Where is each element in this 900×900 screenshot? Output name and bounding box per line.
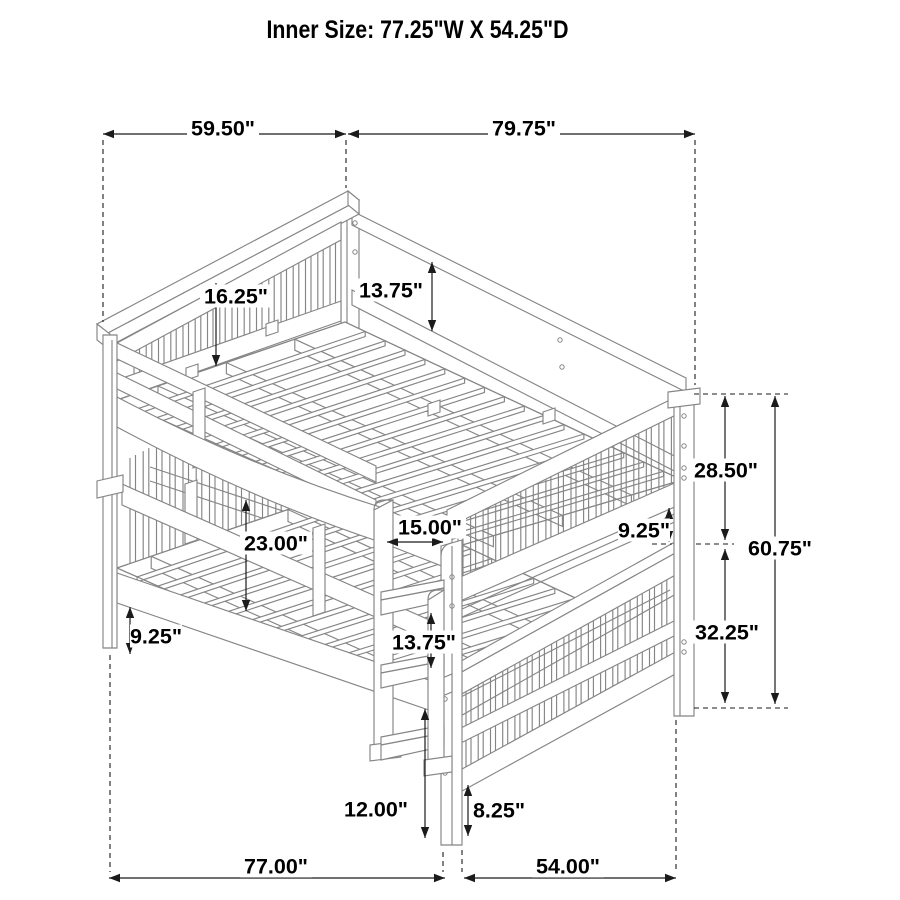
svg-text:12.00": 12.00" xyxy=(344,798,408,822)
svg-text:28.50": 28.50" xyxy=(694,459,758,483)
svg-text:32.25": 32.25" xyxy=(695,621,759,645)
svg-text:15.00": 15.00" xyxy=(398,516,462,540)
svg-text:23.00": 23.00" xyxy=(244,532,308,556)
svg-text:13.75": 13.75" xyxy=(359,279,423,303)
svg-text:79.75": 79.75" xyxy=(492,117,556,141)
svg-text:54.00": 54.00" xyxy=(536,855,600,879)
svg-text:9.25": 9.25" xyxy=(130,625,182,649)
svg-text:Inner Size: 77.25"W X 54.25"D: Inner Size: 77.25"W X 54.25"D xyxy=(267,16,569,44)
svg-text:13.75": 13.75" xyxy=(392,631,456,655)
svg-text:9.25": 9.25" xyxy=(618,519,670,543)
svg-text:8.25": 8.25" xyxy=(473,799,525,823)
svg-text:16.25": 16.25" xyxy=(204,285,268,309)
svg-text:77.00": 77.00" xyxy=(244,855,308,879)
svg-text:59.50": 59.50" xyxy=(191,117,255,141)
svg-text:60.75": 60.75" xyxy=(748,537,812,561)
